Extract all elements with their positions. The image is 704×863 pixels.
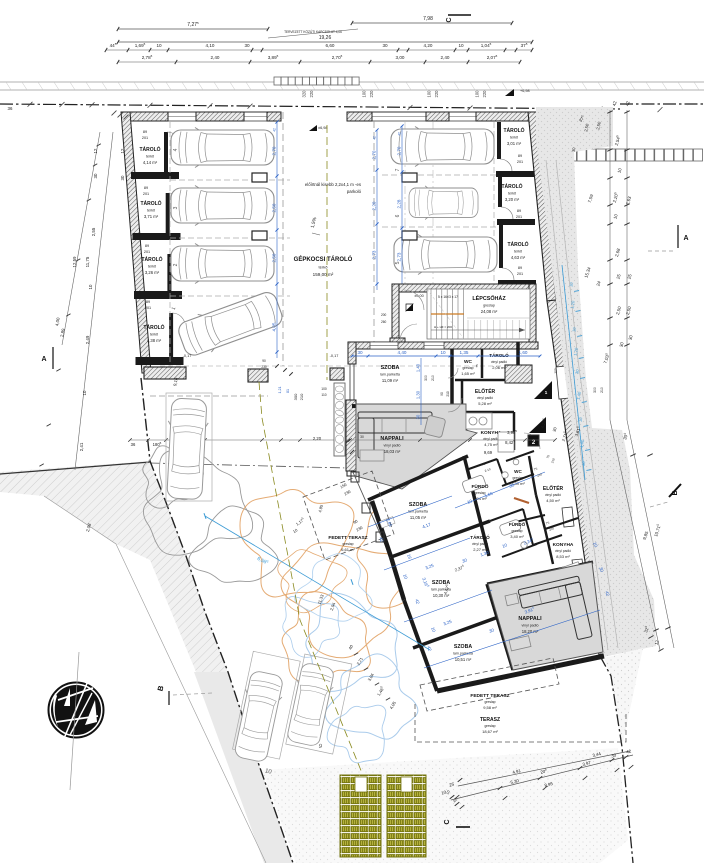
svg-text:TÁROLÓ: TÁROLÓ <box>507 240 528 248</box>
svg-text:300: 300 <box>593 387 597 393</box>
svg-text:230: 230 <box>261 365 267 369</box>
svg-text:NAPPALI: NAPPALI <box>380 436 404 442</box>
svg-text:térkő: térkő <box>148 265 156 269</box>
svg-text:2,50: 2,50 <box>272 253 277 262</box>
svg-text:10: 10 <box>88 284 93 289</box>
svg-text:SZOBA: SZOBA <box>409 502 427 508</box>
svg-text:110: 110 <box>321 393 326 397</box>
svg-text:100: 100 <box>362 90 367 98</box>
svg-text:220: 220 <box>369 90 374 98</box>
svg-text:18,67 m²: 18,67 m² <box>482 729 498 734</box>
svg-text:36: 36 <box>131 442 136 447</box>
svg-text:vinyl padló: vinyl padló <box>483 437 499 441</box>
svg-text:vinyl padló: vinyl padló <box>384 444 401 448</box>
svg-text:H + HF = 200: H + HF = 200 <box>434 325 452 329</box>
svg-text:2,50: 2,50 <box>272 203 277 212</box>
svg-text:2,49: 2,49 <box>85 335 90 344</box>
svg-text:vinyl padló: vinyl padló <box>555 549 571 553</box>
svg-text:TÁROLÓ: TÁROLÓ <box>470 533 490 540</box>
svg-text:89: 89 <box>146 300 150 304</box>
svg-text:260: 260 <box>381 320 387 324</box>
svg-text:210: 210 <box>446 391 450 397</box>
svg-text:9,58 m²: 9,58 m² <box>483 705 497 710</box>
svg-text:2,40: 2,40 <box>211 55 220 60</box>
svg-text:greslap: greslap <box>484 724 495 728</box>
svg-text:9,69: 9,69 <box>484 450 493 455</box>
svg-text:5 x 16²/3 x 17: 5 x 16²/3 x 17 <box>438 295 458 299</box>
svg-text:100: 100 <box>321 387 327 391</box>
svg-text:A: A <box>41 356 46 363</box>
svg-text:FEDETT TERASZ: FEDETT TERASZ <box>470 693 509 699</box>
svg-text:TÁROLÓ: TÁROLÓ <box>489 351 509 358</box>
svg-text:89: 89 <box>143 130 147 134</box>
svg-text:ELŐTÉR: ELŐTÉR <box>475 387 496 395</box>
svg-text:6,61 m²: 6,61 m² <box>341 547 355 552</box>
svg-text:6: 6 <box>395 214 401 217</box>
svg-text:greslap: greslap <box>512 476 523 480</box>
svg-text:201: 201 <box>145 306 151 310</box>
svg-text:greslap: greslap <box>342 542 353 546</box>
svg-text:89: 89 <box>145 244 149 248</box>
svg-text:térkő: térkő <box>150 333 158 337</box>
svg-text:-0,17: -0,17 <box>183 354 192 358</box>
svg-text:SZOBA: SZOBA <box>381 365 400 371</box>
svg-text:greslap: greslap <box>484 700 495 704</box>
svg-text:210: 210 <box>299 393 304 400</box>
svg-text:térkő: térkő <box>146 155 154 159</box>
svg-text:TÁROLÓ: TÁROLÓ <box>139 145 160 153</box>
svg-text:2,70: 2,70 <box>397 146 402 155</box>
svg-text:LÉPCSŐHÁZ: LÉPCSŐHÁZ <box>472 294 506 302</box>
svg-text:TÁROLÓ: TÁROLÓ <box>141 255 162 263</box>
svg-text:vinyl padló: vinyl padló <box>472 542 488 546</box>
svg-text:4,50 m²: 4,50 m² <box>546 498 560 503</box>
svg-text:térkő: térkő <box>147 209 155 213</box>
svg-text:FEDETT TERASZ: FEDETT TERASZ <box>328 535 367 541</box>
svg-text:vinyl padló: vinyl padló <box>522 624 539 628</box>
svg-text:FÜRDŐ: FÜRDŐ <box>509 521 526 527</box>
svg-text:greslap: greslap <box>462 366 473 370</box>
svg-text:90: 90 <box>440 392 444 396</box>
svg-text:210: 210 <box>431 375 435 381</box>
svg-text:SZOBA: SZOBA <box>454 644 472 650</box>
svg-text:vinyl padló: vinyl padló <box>477 396 493 400</box>
svg-text:42: 42 <box>273 128 277 132</box>
svg-text:220: 220 <box>309 90 314 98</box>
svg-text:TÁROLÓ: TÁROLÓ <box>143 323 164 331</box>
svg-text:3: 3 <box>173 206 179 209</box>
svg-text:30: 30 <box>360 435 364 439</box>
svg-text:24,08 m²: 24,08 m² <box>481 309 498 314</box>
svg-text:201: 201 <box>517 272 523 276</box>
svg-text:10: 10 <box>82 390 87 395</box>
svg-text:B: B <box>672 490 679 495</box>
svg-text:7: 7 <box>395 168 401 171</box>
svg-text:30: 30 <box>416 414 421 419</box>
svg-text:C: C <box>446 17 453 22</box>
svg-text:4,05: 4,05 <box>272 322 277 331</box>
svg-text:2,06 m²: 2,06 m² <box>492 365 506 370</box>
svg-text:térkő: térkő <box>508 192 516 196</box>
svg-text:90: 90 <box>262 359 266 363</box>
svg-text:-0,17: -0,17 <box>330 354 339 358</box>
svg-text:3,26 m²: 3,26 m² <box>145 270 160 275</box>
svg-text:201: 201 <box>144 250 150 254</box>
svg-text:2,40: 2,40 <box>441 55 450 60</box>
svg-text:11,05 m²: 11,05 m² <box>410 515 427 520</box>
svg-text:4,14 m²: 4,14 m² <box>143 160 158 165</box>
svg-text:4,20: 4,20 <box>424 43 433 48</box>
svg-text:WC: WC <box>464 359 473 365</box>
svg-text:10,51 m²: 10,51 m² <box>455 657 472 662</box>
svg-text:3,01 m²: 3,01 m² <box>507 141 522 146</box>
svg-text:320: 320 <box>302 90 307 98</box>
svg-text:GÉPKOCSI TÁROLÓ: GÉPKOCSI TÁROLÓ <box>294 255 353 263</box>
svg-text:159,00 m²: 159,00 m² <box>313 272 334 277</box>
svg-text:térkő: térkő <box>510 136 518 140</box>
svg-text:TERASZ: TERASZ <box>480 717 500 723</box>
svg-text:10: 10 <box>440 350 446 355</box>
svg-text:5,28 m²: 5,28 m² <box>478 401 492 406</box>
svg-text:100: 100 <box>427 90 432 98</box>
svg-text:210: 210 <box>600 387 604 393</box>
svg-text:4,10: 4,10 <box>206 43 215 48</box>
svg-text:201: 201 <box>516 215 522 219</box>
svg-text:A: A <box>683 235 688 242</box>
svg-text:10: 10 <box>156 43 162 48</box>
svg-text:6,60: 6,60 <box>326 43 335 48</box>
svg-text:4,40: 4,40 <box>398 350 407 355</box>
svg-text:2,41: 2,41 <box>79 442 84 451</box>
svg-text:89: 89 <box>144 186 148 190</box>
svg-text:89: 89 <box>517 209 521 213</box>
svg-text:220: 220 <box>434 90 439 98</box>
svg-text:4: 4 <box>173 148 179 151</box>
svg-text:89: 89 <box>518 266 522 270</box>
svg-text:2: 2 <box>173 263 179 266</box>
svg-text:30: 30 <box>244 43 250 48</box>
svg-text:12: 12 <box>93 148 98 153</box>
svg-text:75: 75 <box>475 364 479 368</box>
svg-text:7,98: 7,98 <box>423 16 433 22</box>
svg-text:2,70: 2,70 <box>272 146 277 155</box>
svg-text:2,73: 2,73 <box>372 250 377 259</box>
svg-text:WC: WC <box>514 469 522 474</box>
svg-text:parkoló: parkoló <box>347 189 362 194</box>
svg-text:1,40: 1,40 <box>416 363 421 372</box>
svg-text:100: 100 <box>475 90 480 98</box>
svg-text:2,20: 2,20 <box>372 201 377 210</box>
svg-text:201: 201 <box>517 160 523 164</box>
svg-text:3,71 m²: 3,71 m² <box>144 214 159 219</box>
svg-text:10: 10 <box>458 43 464 48</box>
svg-text:11,75: 11,75 <box>85 256 90 267</box>
svg-text:30: 30 <box>93 173 98 178</box>
svg-text:19,26: 19,26 <box>319 35 332 41</box>
svg-text:±6,98: ±6,98 <box>318 126 327 130</box>
svg-text:300: 300 <box>293 393 298 400</box>
svg-text:11,09 m²: 11,09 m² <box>382 378 399 383</box>
svg-text:előírtnál kisebb 2,2x4,1 m -es: előírtnál kisebb 2,2x4,1 m -es <box>305 182 361 187</box>
svg-text:+6,98: +6,98 <box>520 89 530 93</box>
svg-text:1,35: 1,35 <box>460 350 469 355</box>
svg-text:4,63 m²: 4,63 m² <box>511 255 526 260</box>
svg-text:TÁROLÓ: TÁROLÓ <box>140 199 161 207</box>
svg-text:NAPPALI: NAPPALI <box>518 616 542 622</box>
svg-text:30: 30 <box>357 350 363 355</box>
svg-text:TÁROLÓ: TÁROLÓ <box>503 126 524 134</box>
svg-text:12: 12 <box>120 148 125 153</box>
svg-text:200: 200 <box>381 313 387 317</box>
svg-text:3,40 m²: 3,40 m² <box>510 534 524 539</box>
svg-text:3,20 m²: 3,20 m² <box>505 197 520 202</box>
svg-text:vinyl padló: vinyl padló <box>491 360 507 364</box>
svg-text:36: 36 <box>8 106 13 111</box>
svg-text:3,00: 3,00 <box>396 55 405 60</box>
svg-text:18,03 m²: 18,03 m² <box>384 449 401 454</box>
svg-text:8,53 m²: 8,53 m² <box>556 554 570 559</box>
svg-text:TÁROLÓ: TÁROLÓ <box>501 182 522 190</box>
svg-text:térkő: térkő <box>514 250 522 254</box>
svg-text:1,21: 1,21 <box>278 387 282 394</box>
svg-text:2,28: 2,28 <box>397 199 402 208</box>
svg-text:89: 89 <box>518 154 522 158</box>
svg-text:ELŐTÉR: ELŐTÉR <box>543 484 564 492</box>
svg-text:greslap: greslap <box>511 529 522 533</box>
svg-text:81: 81 <box>286 389 290 393</box>
svg-text:4,38 m²: 4,38 m² <box>147 338 162 343</box>
svg-text:42: 42 <box>398 132 402 136</box>
svg-text:greslap: greslap <box>483 304 495 308</box>
svg-text:1,30: 1,30 <box>416 390 421 399</box>
svg-text:4,75 m²: 4,75 m² <box>484 442 498 447</box>
svg-text:201: 201 <box>142 136 148 140</box>
svg-text:12,59: 12,59 <box>72 256 77 268</box>
svg-text:lam.parketta: lam.parketta <box>380 373 400 377</box>
svg-text:300: 300 <box>424 375 428 381</box>
svg-text:lam.parketta: lam.parketta <box>408 510 428 514</box>
svg-text:201: 201 <box>143 192 149 196</box>
svg-text:30: 30 <box>382 43 388 48</box>
svg-text:térkő: térkő <box>319 265 329 270</box>
svg-text:FÜRDŐ: FÜRDŐ <box>471 483 488 490</box>
svg-text:±0,00: ±0,00 <box>414 294 423 298</box>
svg-text:vinyl padló: vinyl padló <box>545 493 561 497</box>
svg-text:2,55: 2,55 <box>91 227 96 236</box>
svg-text:42: 42 <box>373 136 377 140</box>
svg-text:1,65 m²: 1,65 m² <box>461 371 475 376</box>
svg-text:2,70: 2,70 <box>372 150 377 159</box>
svg-text:2,73: 2,73 <box>397 252 402 261</box>
svg-text:KONYHA: KONYHA <box>553 542 574 548</box>
svg-text:TERVEZETT KÖZÚTI KAPCSOLAT 4,0: TERVEZETT KÖZÚTI KAPCSOLAT 4,06 <box>284 29 342 34</box>
svg-text:220: 220 <box>482 90 487 98</box>
svg-text:30: 30 <box>120 175 125 180</box>
svg-text:1,60: 1,60 <box>519 350 528 355</box>
svg-text:C: C <box>444 819 451 824</box>
svg-text:2,20: 2,20 <box>313 436 322 441</box>
